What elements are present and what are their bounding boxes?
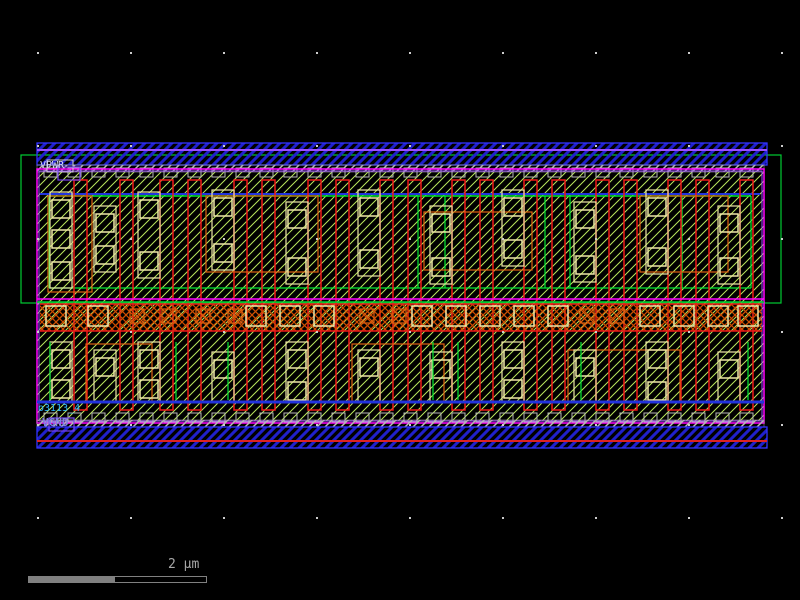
layout-canvas[interactable] bbox=[0, 0, 800, 600]
vgnd-rail bbox=[37, 427, 767, 448]
vpwr-rail bbox=[37, 143, 767, 165]
scale-bar-label: 2 μm bbox=[168, 557, 199, 572]
scale-bar-filled-segment bbox=[28, 576, 114, 583]
vgnd-pin-label: VGND bbox=[42, 417, 69, 428]
cell-hatch-field bbox=[37, 172, 764, 421]
mid-routing-band bbox=[37, 299, 764, 331]
vpwr-pin-label: VPWR bbox=[40, 161, 64, 171]
scale-bar-outline-segment bbox=[114, 576, 207, 583]
layout-viewport[interactable]: VPWR o3113_4 VGND 2 μm bbox=[0, 0, 800, 600]
instance-name-label: o3113_4 bbox=[38, 404, 80, 414]
